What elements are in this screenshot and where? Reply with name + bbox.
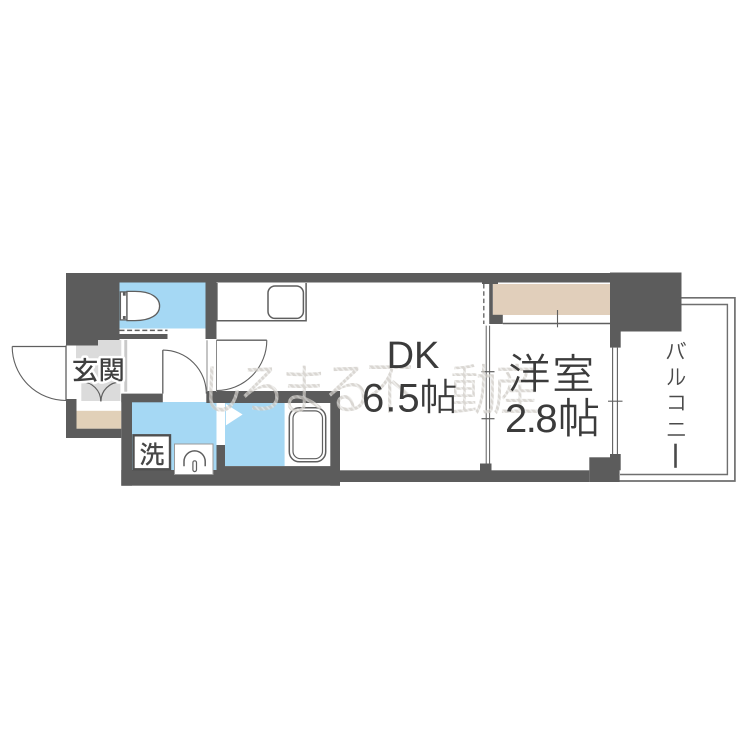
svg-text:2.8: 2.8 xyxy=(505,397,556,441)
svg-text:DK: DK xyxy=(387,335,440,377)
svg-text:6.5: 6.5 xyxy=(362,377,421,421)
